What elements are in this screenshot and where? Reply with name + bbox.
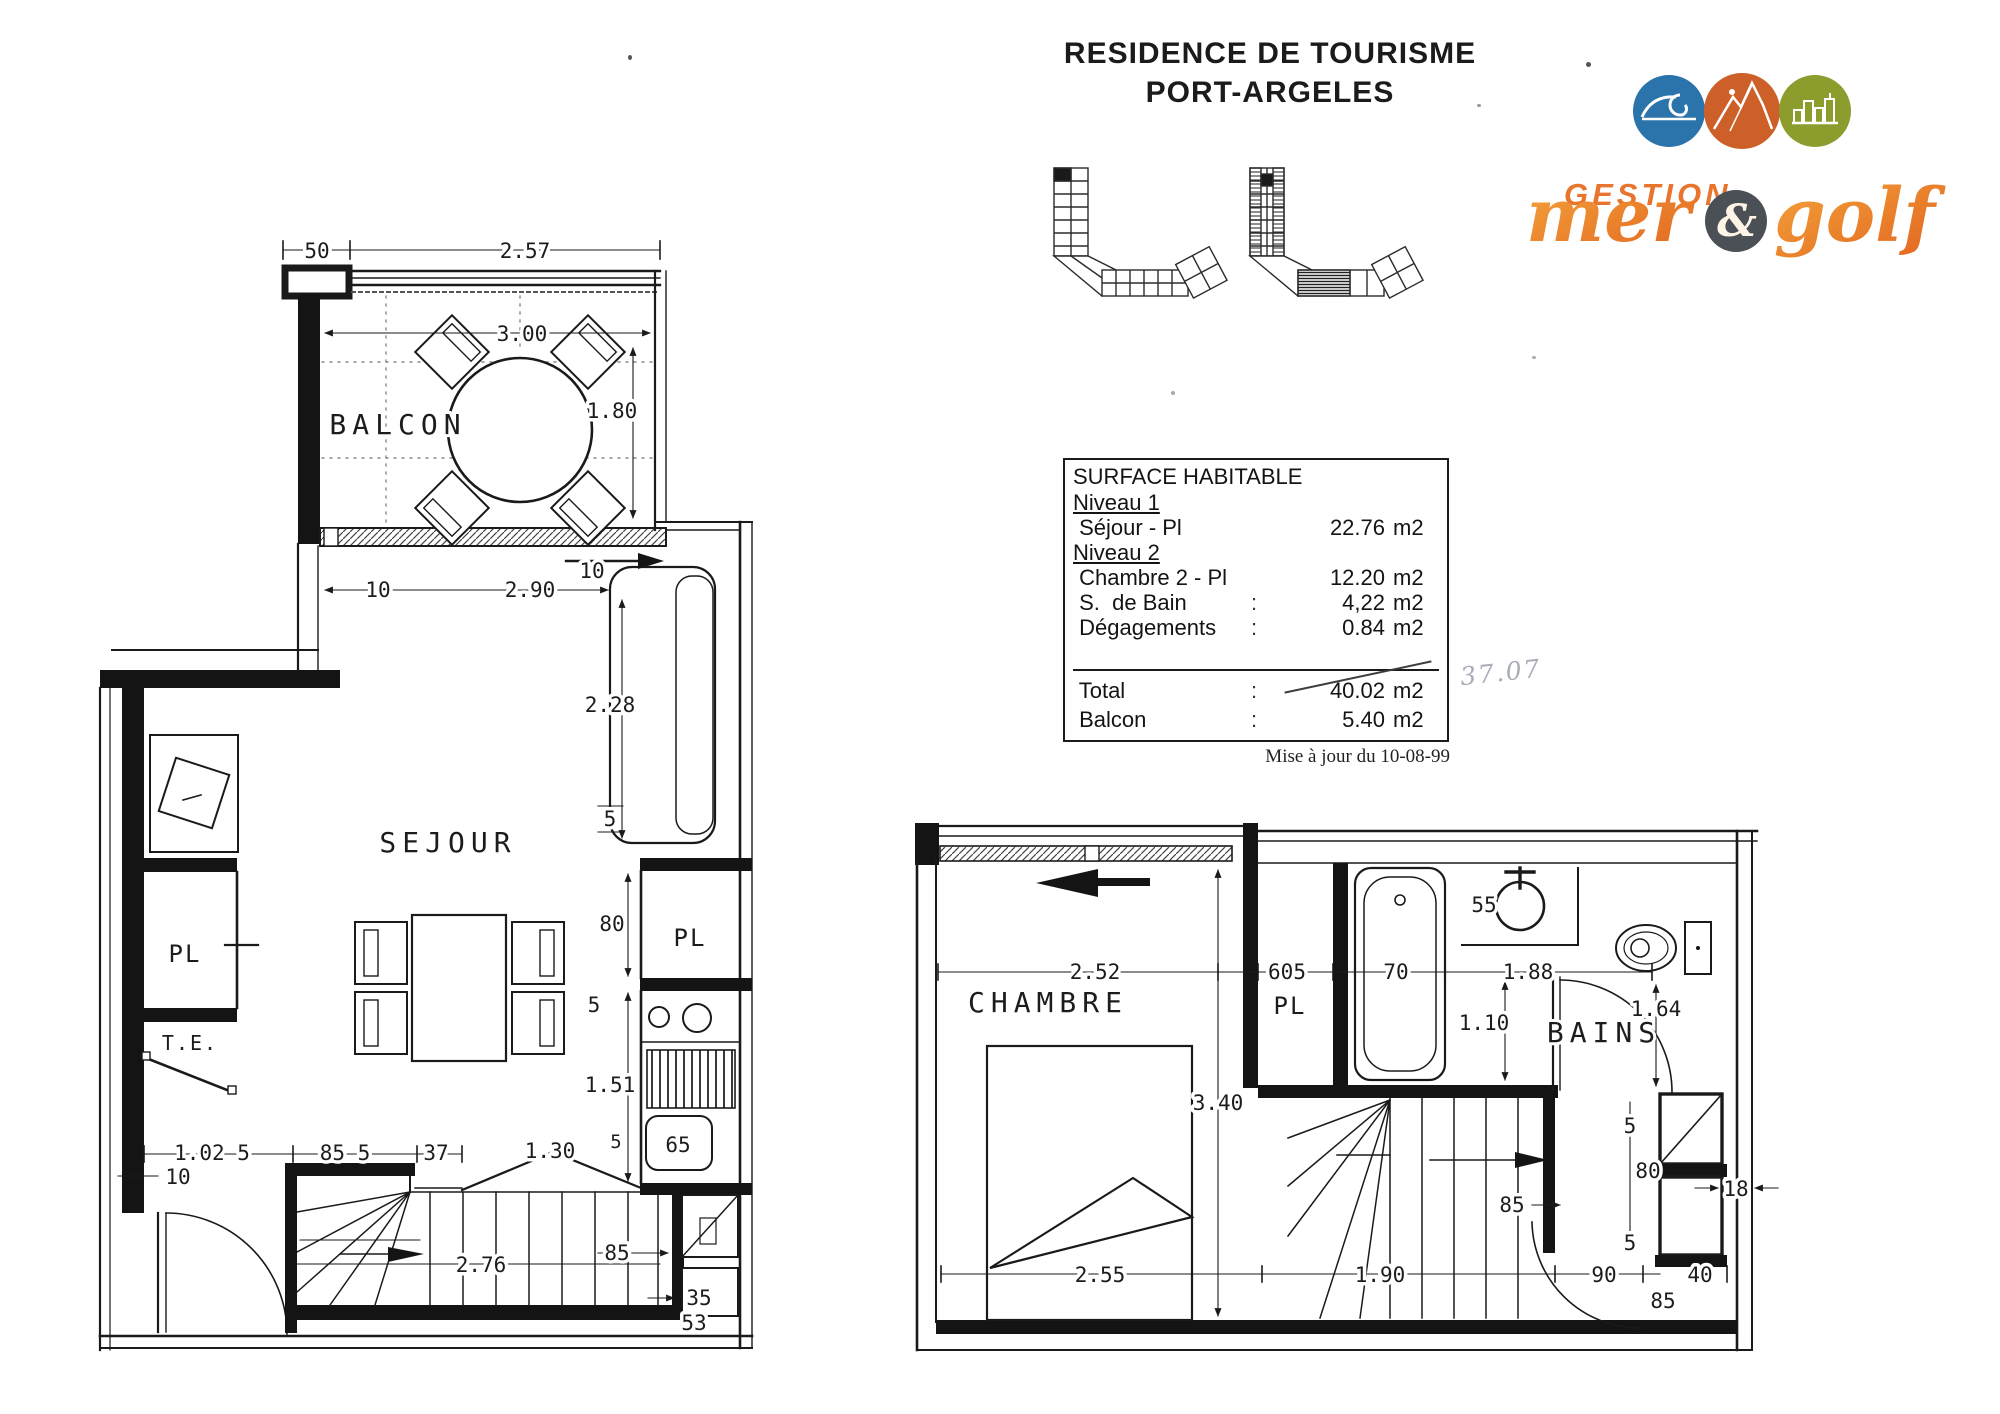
mer-et-golf-logo: GESTION mer & golf xyxy=(1520,55,1960,255)
logo-golf-text: golf xyxy=(1774,173,1946,259)
site-plan-level-2 xyxy=(1250,168,1423,298)
te-door xyxy=(142,1052,236,1094)
floor-plan-niveau-1: 50 2.57 3.00 1.80 BALCON 10 2.90 10 2.28… xyxy=(70,180,790,1370)
site-key-plans xyxy=(1040,166,1400,298)
burner-small xyxy=(649,1007,669,1027)
room-label-pl-kitchen: PL xyxy=(674,924,707,952)
surface-table-title: SURFACE HABITABLE xyxy=(1073,464,1439,490)
burner-large xyxy=(683,1004,711,1032)
toilet xyxy=(1616,922,1711,974)
handwritten-correction: 37.07 xyxy=(1459,654,1543,691)
entry-direction-arrow xyxy=(1036,869,1150,897)
entry-door xyxy=(158,1213,287,1334)
room-label-pl: PL xyxy=(169,940,202,968)
niveau-2-heading: Niveau 2 xyxy=(1073,540,1439,565)
dim: 10 xyxy=(165,1165,190,1189)
document-title: RESIDENCE DE TOURISME PORT-ARGELES xyxy=(1040,34,1500,112)
table-footnote: Mise à jour du 10-08-99 xyxy=(1150,746,1450,768)
unit-marker xyxy=(1054,168,1071,181)
dim: 35 xyxy=(686,1286,711,1310)
drainer xyxy=(647,1050,735,1108)
dim: 5 xyxy=(588,993,601,1017)
dim: 37 xyxy=(423,1141,448,1165)
dim: 3.00 xyxy=(497,322,548,346)
round-table xyxy=(448,358,592,502)
dining-table xyxy=(355,915,564,1061)
dim: 2.57 xyxy=(500,239,551,263)
dim: 2.28 xyxy=(585,693,636,717)
dim: 2.76 xyxy=(456,1253,507,1277)
dim: 3.40 xyxy=(1193,1091,1244,1115)
dim: 5 xyxy=(1624,1231,1637,1255)
dim: 2.52 xyxy=(1070,960,1121,984)
dim: 80 xyxy=(599,912,624,936)
logo-ampersand-text: & xyxy=(1717,196,1757,247)
dim: 5 xyxy=(1624,1114,1637,1138)
scan-speck xyxy=(1477,104,1481,107)
dim: 2.90 xyxy=(505,578,556,602)
dim: 65 xyxy=(665,1133,690,1157)
niveau-1-heading: Niveau 1 xyxy=(1073,490,1439,515)
dim: 85 xyxy=(1499,1193,1524,1217)
room-label-te: T.E. xyxy=(162,1031,218,1055)
stair-direction-arrow xyxy=(388,1247,424,1262)
dim: 1.80 xyxy=(587,399,638,423)
dim: 5 xyxy=(610,1131,621,1153)
scan-speck xyxy=(1532,356,1536,359)
dim: 1.88 xyxy=(1503,960,1554,984)
surface-table: SURFACE HABITABLE Niveau 1 Séjour - Pl 2… xyxy=(1063,458,1449,742)
dim: 50 xyxy=(304,239,329,263)
dim: 1.51 xyxy=(585,1073,636,1097)
scan-speck xyxy=(1171,391,1175,395)
dim: 1.30 xyxy=(525,1139,576,1163)
dim: 80 xyxy=(1635,1159,1660,1183)
dim: 90 xyxy=(1591,1263,1616,1287)
site-plan-level-1 xyxy=(1054,168,1227,298)
table-row-balcon: Balcon : 5.40 m2 xyxy=(1073,705,1439,734)
logo-mountain-icon xyxy=(1704,73,1780,149)
dim: 1.90 xyxy=(1355,1263,1406,1287)
logo-sea-icon xyxy=(1633,75,1705,147)
dim: 1.02 5 xyxy=(174,1141,250,1165)
dim: 10 xyxy=(365,578,390,602)
dim: 85 xyxy=(1650,1289,1675,1313)
title-line-2: PORT-ARGELES xyxy=(1040,73,1500,112)
scan-speck xyxy=(1586,62,1591,67)
dim: 85 xyxy=(604,1241,629,1265)
dim: 5 xyxy=(604,807,617,831)
table-row-sejour: Séjour - Pl 22.76 m2 xyxy=(1073,515,1439,540)
dim: 53 xyxy=(681,1311,706,1335)
washbasin xyxy=(1496,868,1544,930)
dim: 55 xyxy=(1471,893,1496,917)
dim: 2.55 xyxy=(1075,1263,1126,1287)
title-line-1: RESIDENCE DE TOURISME xyxy=(1040,34,1500,73)
dim: 605 xyxy=(1268,960,1306,984)
room-label-sejour: SEJOUR xyxy=(379,826,516,859)
room-label-chambre: CHAMBRE xyxy=(968,986,1128,1019)
dim: 85 5 xyxy=(320,1141,371,1165)
table-row-sdb: S. de Bain : 4,22 m2 xyxy=(1073,590,1439,615)
scan-speck xyxy=(628,55,632,60)
dim: 10 xyxy=(579,559,604,583)
balcony-rail xyxy=(320,528,666,546)
logo-mer-text: mer xyxy=(1526,173,1695,259)
table-row-degagements: Dégagements : 0.84 m2 xyxy=(1073,615,1439,640)
dim: 18 xyxy=(1723,1177,1748,1201)
floor-plan-niveau-2: 2.52 3.40 605 70 1.88 55 1.10 1.64 5 80 … xyxy=(895,815,1800,1375)
room-label-bains: BAINS xyxy=(1547,1016,1661,1049)
dim: 70 xyxy=(1383,960,1408,984)
dim: 1.10 xyxy=(1459,1011,1510,1035)
technical-duct xyxy=(150,735,238,852)
unit-marker xyxy=(1261,174,1273,186)
table-row-chambre: Chambre 2 - Pl 12.20 m2 xyxy=(1073,565,1439,590)
room-label-pl: PL xyxy=(1274,992,1307,1020)
room-label-balcon: BALCON xyxy=(329,408,466,441)
logo-city-icon xyxy=(1779,75,1851,147)
table-row-total: Total : 40.02 m2 xyxy=(1073,676,1439,705)
dim: 40 xyxy=(1687,1263,1712,1287)
